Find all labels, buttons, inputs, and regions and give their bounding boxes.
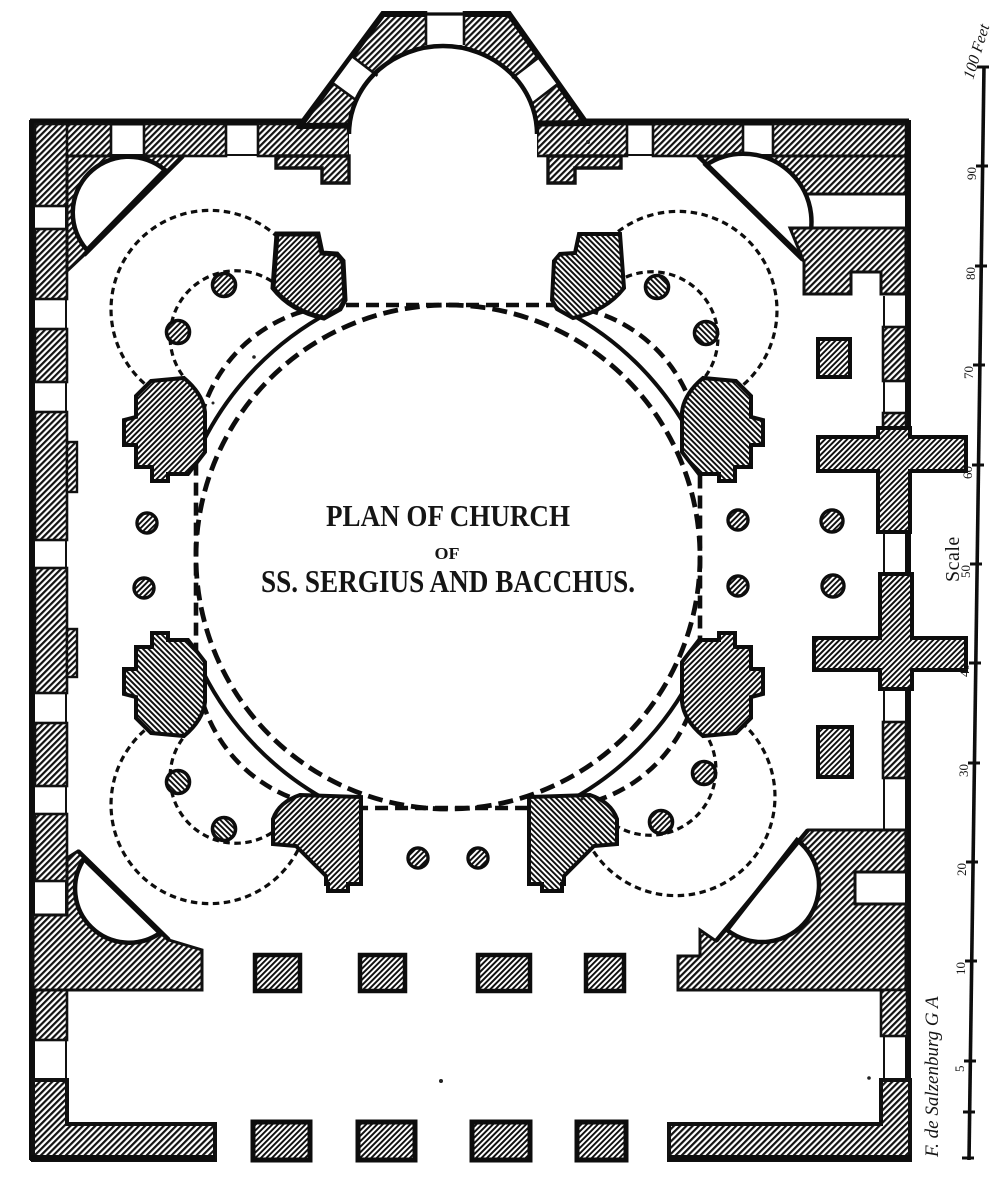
svg-text:40: 40: [957, 664, 972, 677]
svg-text:80: 80: [963, 267, 978, 280]
svg-text:Scale: Scale: [942, 536, 964, 582]
svg-text:PLAN OF CHURCH: PLAN OF CHURCH: [326, 498, 570, 533]
svg-text:70: 70: [961, 366, 976, 379]
svg-text:F. de Salzenburg G A: F. de Salzenburg G A: [922, 996, 943, 1158]
svg-text:OF: OF: [435, 544, 460, 563]
svg-text:20: 20: [954, 863, 969, 876]
svg-text:60: 60: [960, 466, 975, 479]
svg-text:5: 5: [952, 1066, 967, 1073]
svg-text:30: 30: [956, 764, 971, 777]
svg-text:10: 10: [953, 962, 968, 975]
svg-text:90: 90: [964, 167, 979, 180]
svg-text:SS. SERGIUS AND BACCHUS.: SS. SERGIUS AND BACCHUS.: [261, 563, 635, 599]
